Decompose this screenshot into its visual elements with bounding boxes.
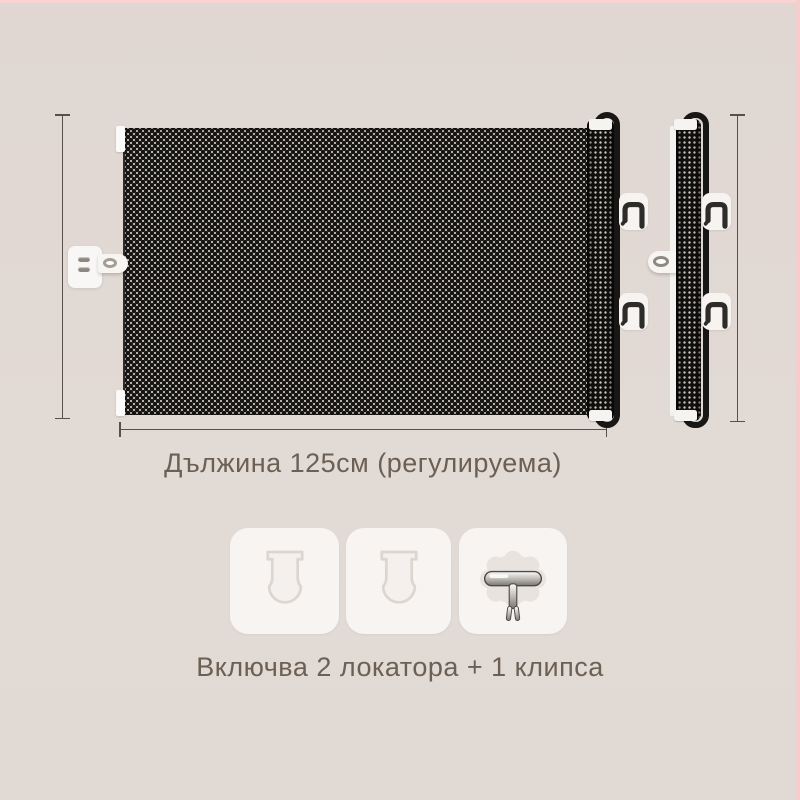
latch-hole xyxy=(653,256,669,267)
roller-cap-bottom xyxy=(674,410,697,421)
hook-bracket xyxy=(619,293,648,330)
latch-tongue-icon xyxy=(98,254,128,273)
locator-slot-icon xyxy=(256,542,314,620)
mesh-edge-tab-top xyxy=(116,126,125,152)
mesh-edge-tab-bottom xyxy=(116,390,125,416)
product-diagram-canvas: Дължина 125см (регулируема) xyxy=(0,0,800,800)
hook-bracket xyxy=(702,193,731,230)
top-accent-strip xyxy=(0,0,800,3)
hook-bracket xyxy=(619,193,648,230)
hook-icon xyxy=(619,197,648,229)
includes-label: Включва 2 локатора + 1 клипса xyxy=(0,652,800,683)
wall-locator-pad xyxy=(68,246,102,288)
roller-cap-top xyxy=(589,119,612,130)
hook-icon xyxy=(619,297,648,329)
length-dimension-line xyxy=(119,429,607,430)
roller-cap-bottom xyxy=(589,410,612,421)
right-height-dimension-line xyxy=(737,114,738,422)
roller-cap-top xyxy=(674,119,697,130)
hook-icon xyxy=(702,197,731,229)
hook-bracket xyxy=(702,293,731,330)
roller-spool xyxy=(587,119,614,421)
locator-tile-2 xyxy=(346,528,451,634)
locator-tile-1 xyxy=(230,528,339,634)
left-height-dimension-line xyxy=(62,114,63,419)
hook-icon xyxy=(702,297,731,329)
mesh-panel xyxy=(123,128,590,415)
metal-clip-icon xyxy=(462,530,564,632)
screw-icon xyxy=(78,257,90,262)
latch-hole xyxy=(103,258,117,268)
screw-icon xyxy=(78,267,90,272)
locator-slot-icon xyxy=(370,542,428,620)
clip-tile xyxy=(459,528,567,634)
length-label: Дължина 125см (регулируема) xyxy=(99,448,627,479)
roller-spool xyxy=(676,119,701,421)
